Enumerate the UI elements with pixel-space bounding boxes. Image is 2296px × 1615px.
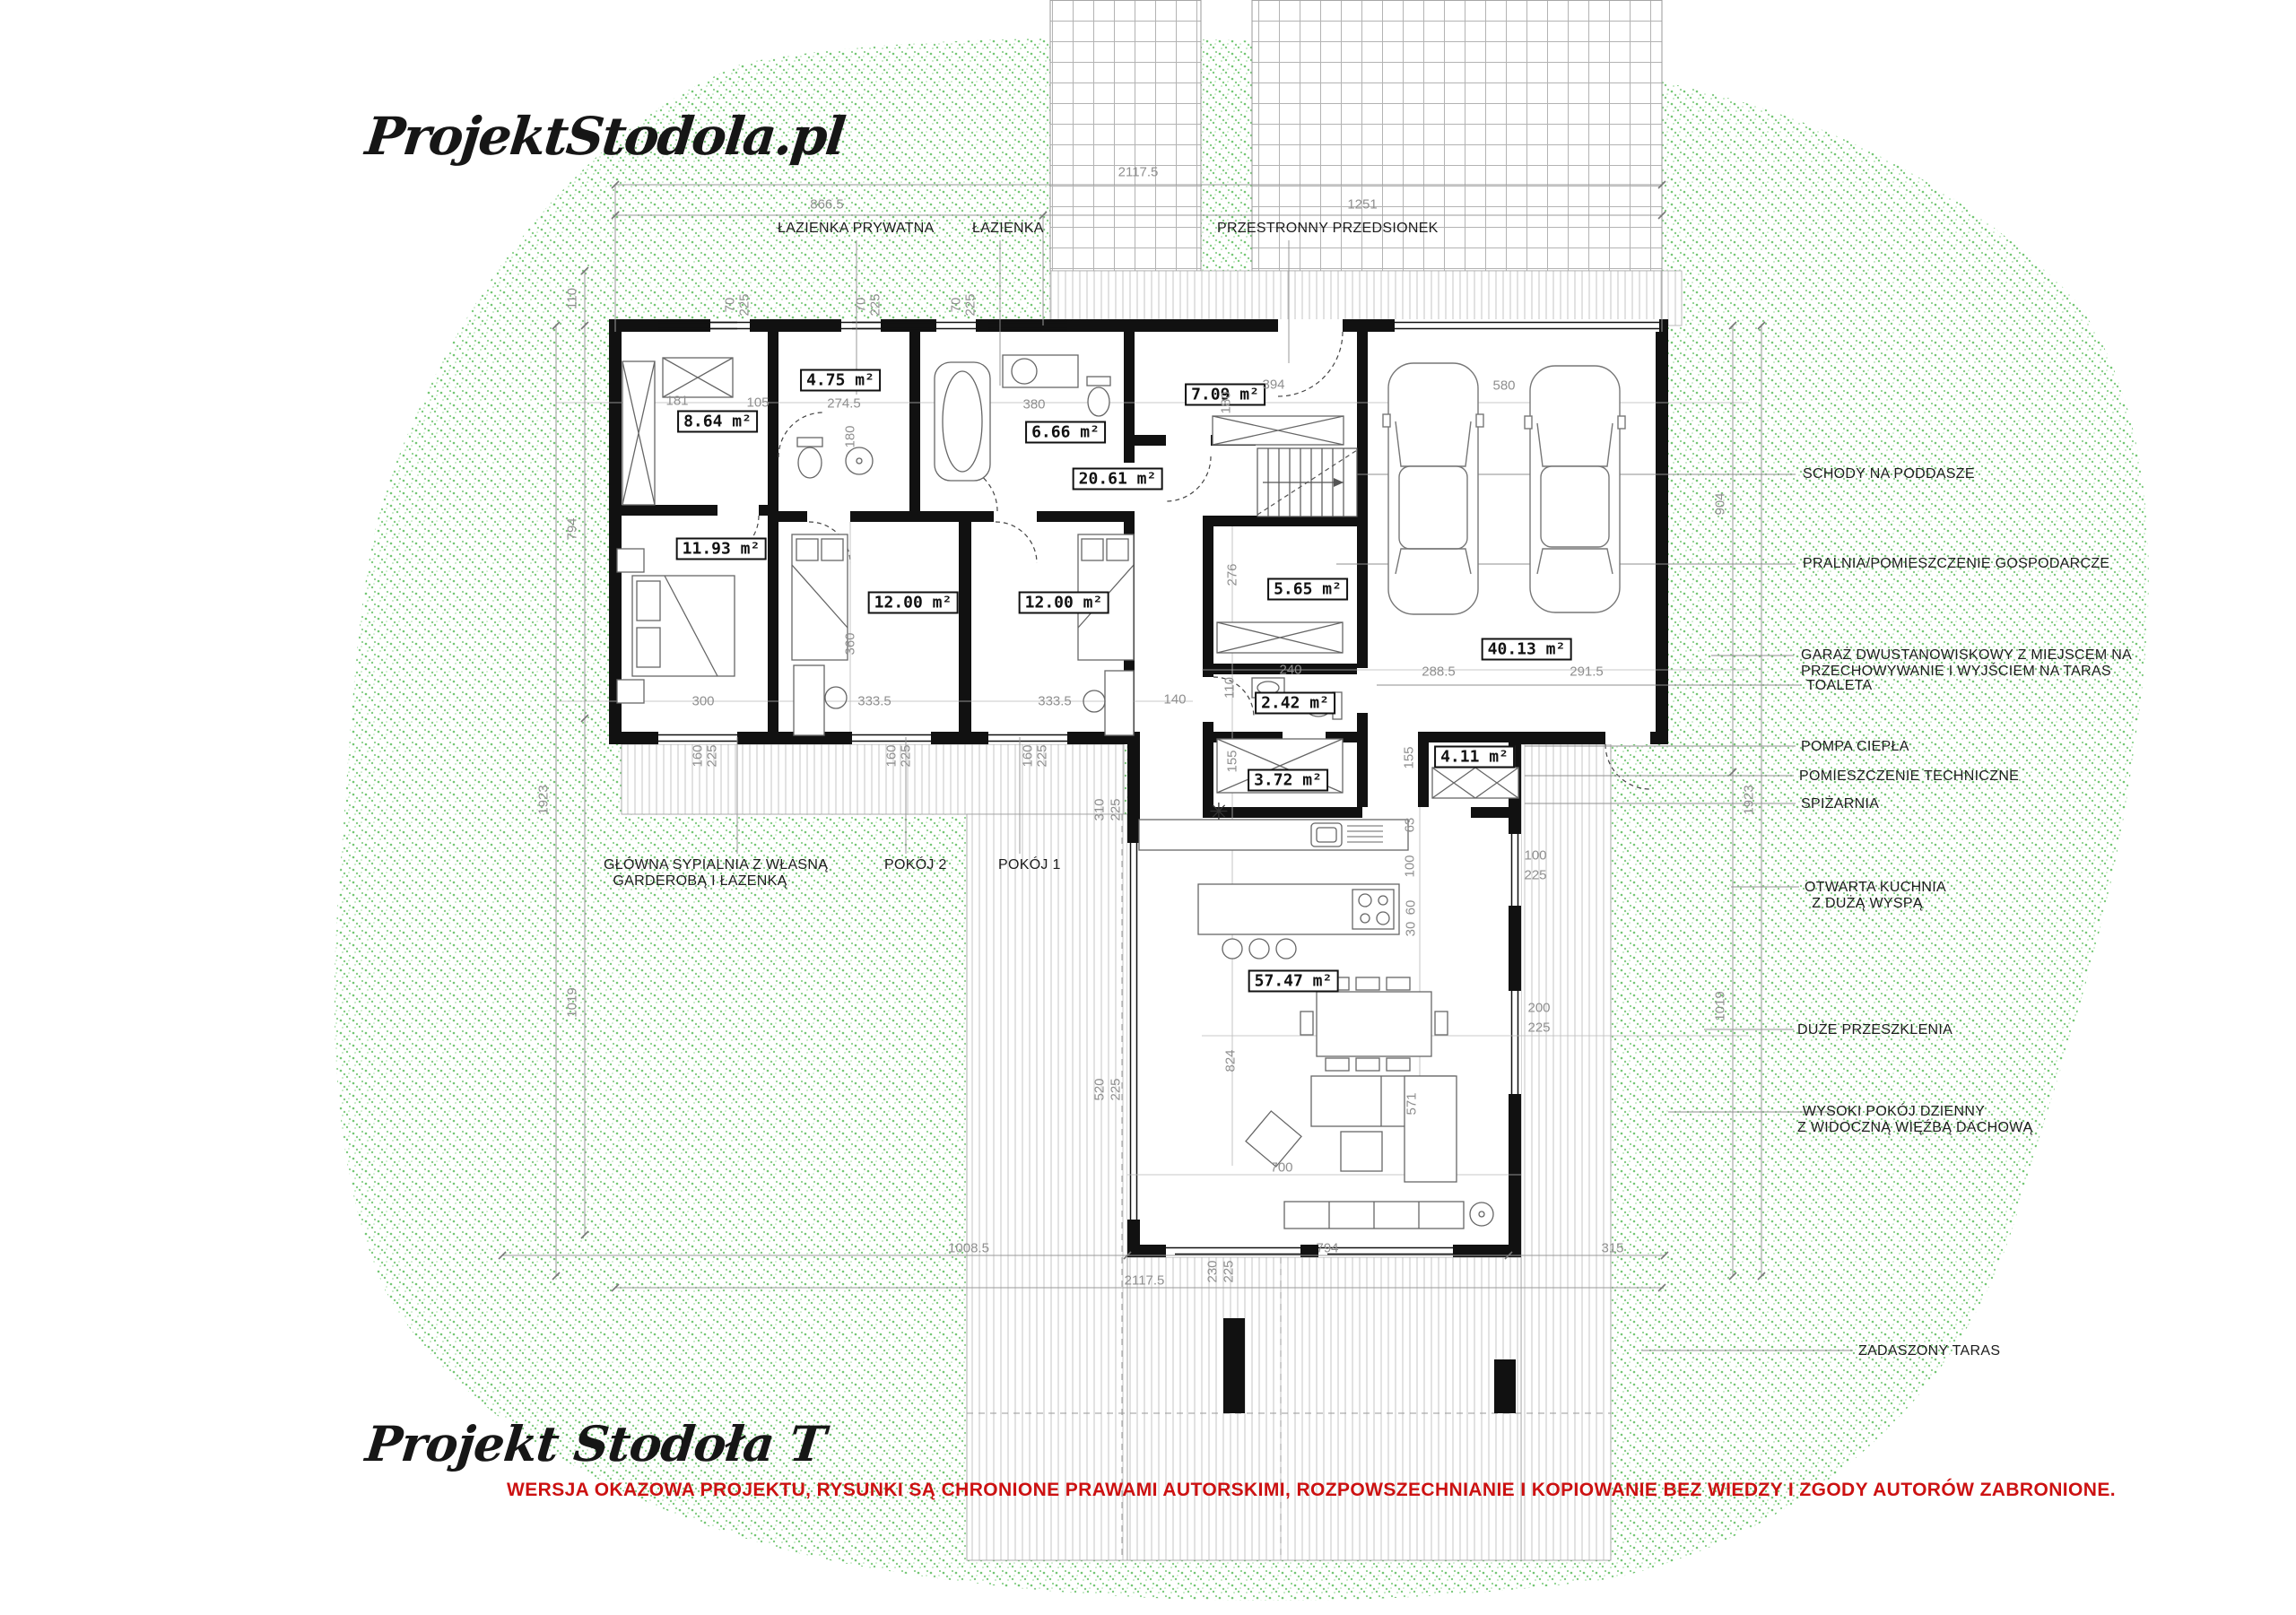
dim-label: 300 bbox=[691, 694, 714, 709]
dim-label: 225 bbox=[737, 293, 752, 316]
callout-lazienka: ŁAZIENKA bbox=[972, 221, 1044, 237]
dim-label: 225 bbox=[1035, 744, 1050, 767]
dim-label: 2117.5 bbox=[1125, 1273, 1165, 1289]
room-area-toaleta: 2.42 m² bbox=[1255, 692, 1335, 715]
room-area-pokoj1: 12.00 m² bbox=[1019, 592, 1109, 614]
dim-label: 100 bbox=[1403, 855, 1418, 877]
callout-room1: POKÓJ 1 bbox=[998, 857, 1061, 873]
callout-garaz-line1: GARAŻ DWUSTANOWISKOWY Z MIEJSCEM NA bbox=[1801, 647, 2070, 664]
dim-label: 520 bbox=[1092, 1078, 1108, 1100]
dining-table bbox=[1317, 992, 1431, 1056]
callout-master-line1: GŁÓWNA SYPIALNIA Z WŁASNĄ bbox=[604, 857, 796, 873]
dim-label: 1251 bbox=[1347, 197, 1377, 213]
dim-label: 794 bbox=[1316, 1241, 1338, 1256]
dim-label: 700 bbox=[1270, 1160, 1292, 1176]
dim-label: 30 bbox=[1404, 922, 1419, 937]
room-area-garaz: 40.13 m² bbox=[1482, 638, 1572, 661]
room-area-techniczne: 3.72 m² bbox=[1248, 769, 1328, 792]
dim-label: 240 bbox=[1279, 663, 1301, 678]
dim-label: 1923 bbox=[1742, 785, 1757, 814]
dim-label: 230 bbox=[1205, 1260, 1221, 1282]
room-area-pokoj-dzienny: 57.47 m² bbox=[1248, 970, 1339, 993]
callout-taras: ZADASZONY TARAS bbox=[1858, 1343, 2000, 1359]
callout-master-line2: GARDEROBĄ I ŁAZENKĄ bbox=[604, 873, 796, 890]
dim-label: 63 bbox=[1403, 818, 1418, 833]
bar-stool bbox=[1276, 939, 1296, 959]
floor-plan-sheet: ProjektStodola.pl Projekt Stodoła T WERS… bbox=[0, 0, 2296, 1615]
callout-room2: POKÓJ 2 bbox=[884, 857, 947, 873]
room-area-hol: 20.61 m² bbox=[1073, 468, 1163, 491]
roof-tiles bbox=[1050, 0, 1682, 326]
callout-kuchnia-line1: OTWARTA KUCHNIA bbox=[1805, 880, 1930, 896]
dim-label: 225 bbox=[963, 293, 978, 316]
room-area-pokoj2: 12.00 m² bbox=[868, 592, 959, 614]
callout-kuchnia-line2: Z DUŻĄ WYSPĄ bbox=[1805, 896, 1930, 912]
dim-label: 2117.5 bbox=[1118, 165, 1159, 180]
dim-label: 333.5 bbox=[857, 694, 891, 709]
dim-label: 155 bbox=[1225, 750, 1240, 772]
dim-label: 274.5 bbox=[827, 396, 861, 412]
callout-pokoj-dzienny-line1: WYSOKI POKÓJ DZIENNY bbox=[1797, 1104, 1990, 1120]
kitchen-star-symbol: ✳ bbox=[1209, 798, 1229, 826]
project-title: Projekt Stodoła T bbox=[363, 1415, 828, 1472]
dim-label: 160 bbox=[691, 744, 706, 767]
callout-pralnia: PRALNIA/POMIESZCZENIE GOSPODARCZE bbox=[1803, 556, 2109, 572]
callout-schody: SCHODY NA PODDASZE bbox=[1803, 466, 1975, 482]
callout-pompa-ciepla: POMPA CIEPŁA bbox=[1801, 739, 1909, 755]
dim-label: 225 bbox=[1524, 868, 1546, 883]
dim-label: 160 bbox=[1021, 744, 1036, 767]
callout-toaleta: TOALETA bbox=[1806, 678, 1873, 694]
dim-label: 380 bbox=[1022, 397, 1045, 412]
dim-label: 70 bbox=[949, 298, 964, 313]
room-area-spizarnia: 4.11 m² bbox=[1434, 746, 1515, 768]
dim-label: 291.5 bbox=[1570, 664, 1604, 680]
callout-przedsionek: PRZESTRONNY PRZEDSIONEK bbox=[1217, 221, 1439, 237]
floor-plan-drawing bbox=[0, 0, 2296, 1615]
dim-label: 225 bbox=[1109, 1078, 1124, 1100]
dim-label: 160 bbox=[884, 744, 900, 767]
callout-pokoj-dzienny: WYSOKI POKÓJ DZIENNY Z WIDOCZNĄ WIĘŹBĄ D… bbox=[1797, 1104, 1990, 1136]
room-area-garderoba: 8.64 m² bbox=[677, 411, 758, 433]
dim-label: 181 bbox=[665, 394, 688, 409]
dim-label: 310 bbox=[1092, 798, 1108, 821]
dim-label: 394 bbox=[1262, 378, 1284, 393]
dim-label: 70 bbox=[854, 298, 869, 313]
coffee-table bbox=[1341, 1132, 1382, 1171]
dim-label: 580 bbox=[1492, 378, 1515, 394]
dim-label: 200 bbox=[1527, 1001, 1550, 1016]
dim-label: 1923 bbox=[536, 785, 552, 814]
callout-przeszklenia: DUŻE PRZESZKLENIA bbox=[1797, 1022, 1952, 1038]
dim-label: 866.5 bbox=[810, 197, 844, 213]
bar-stool bbox=[1222, 939, 1242, 959]
callout-spizarnia: SPIŻARNIA bbox=[1801, 796, 1879, 812]
dim-label: 60 bbox=[1404, 900, 1419, 916]
dim-label: 180 bbox=[1219, 391, 1234, 413]
dim-label: 225 bbox=[868, 293, 883, 316]
room-area-lazienka-prywatna: 4.75 m² bbox=[800, 369, 881, 392]
dim-label: 794 bbox=[565, 517, 580, 540]
dim-label: 904 bbox=[1713, 492, 1728, 515]
dim-label: 140 bbox=[1163, 692, 1186, 708]
dim-label: 110 bbox=[1222, 677, 1238, 699]
dim-label: 225 bbox=[899, 744, 914, 767]
dim-label: 1019 bbox=[565, 987, 580, 1017]
dim-label: 276 bbox=[1225, 563, 1240, 586]
dim-label: 225 bbox=[1222, 1260, 1237, 1282]
dim-label: 225 bbox=[1527, 1020, 1550, 1036]
site-logo: ProjektStodola.pl bbox=[362, 106, 847, 167]
callout-kuchnia: OTWARTA KUCHNIA Z DUŻĄ WYSPĄ bbox=[1805, 880, 1930, 912]
callout-master-bedroom: GŁÓWNA SYPIALNIA Z WŁASNĄ GARDEROBĄ I ŁA… bbox=[604, 857, 796, 890]
dim-label: 155 bbox=[1402, 746, 1417, 768]
dim-label: 100 bbox=[1524, 848, 1546, 864]
room-area-sypialnia: 11.93 m² bbox=[676, 538, 767, 560]
callout-garaz: GARAŻ DWUSTANOWISKOWY Z MIEJSCEM NA PRZE… bbox=[1801, 647, 2070, 680]
dim-label: 315 bbox=[1601, 1241, 1623, 1256]
kitchen-counter bbox=[1139, 820, 1408, 850]
room-area-lazienka: 6.66 m² bbox=[1025, 421, 1106, 444]
callout-pom-techniczne: POMIESZCZENIE TECHNICZNE bbox=[1799, 768, 2019, 785]
dim-label: 571 bbox=[1405, 1092, 1420, 1115]
dim-label: 360 bbox=[843, 632, 858, 655]
dim-label: 1008.5 bbox=[948, 1241, 989, 1256]
callout-pokoj-dzienny-line2: Z WIDOCZNĄ WIĘŹBĄ DACHOWĄ bbox=[1797, 1120, 1990, 1136]
dim-label: 333.5 bbox=[1038, 694, 1072, 709]
dim-label: 110 bbox=[565, 288, 580, 309]
dim-label: 180 bbox=[843, 425, 858, 447]
bar-stool bbox=[1249, 939, 1269, 959]
dim-label: 105 bbox=[746, 395, 769, 411]
room-area-pralnia: 5.65 m² bbox=[1267, 578, 1348, 601]
dim-label: 1019 bbox=[1713, 991, 1728, 1020]
dim-label: 70 bbox=[723, 298, 738, 313]
dim-label: 288.5 bbox=[1422, 664, 1456, 680]
dim-label: 824 bbox=[1223, 1049, 1239, 1072]
stairs bbox=[1257, 448, 1357, 517]
dim-label: 225 bbox=[1109, 798, 1124, 821]
copyright-notice: WERSJA OKAZOWA PROJEKTU, RYSUNKI SĄ CHRO… bbox=[507, 1480, 2116, 1501]
dim-label: 225 bbox=[705, 744, 720, 767]
callout-lazienka-prywatna: ŁAZIENKA PRYWATNA bbox=[778, 221, 935, 237]
